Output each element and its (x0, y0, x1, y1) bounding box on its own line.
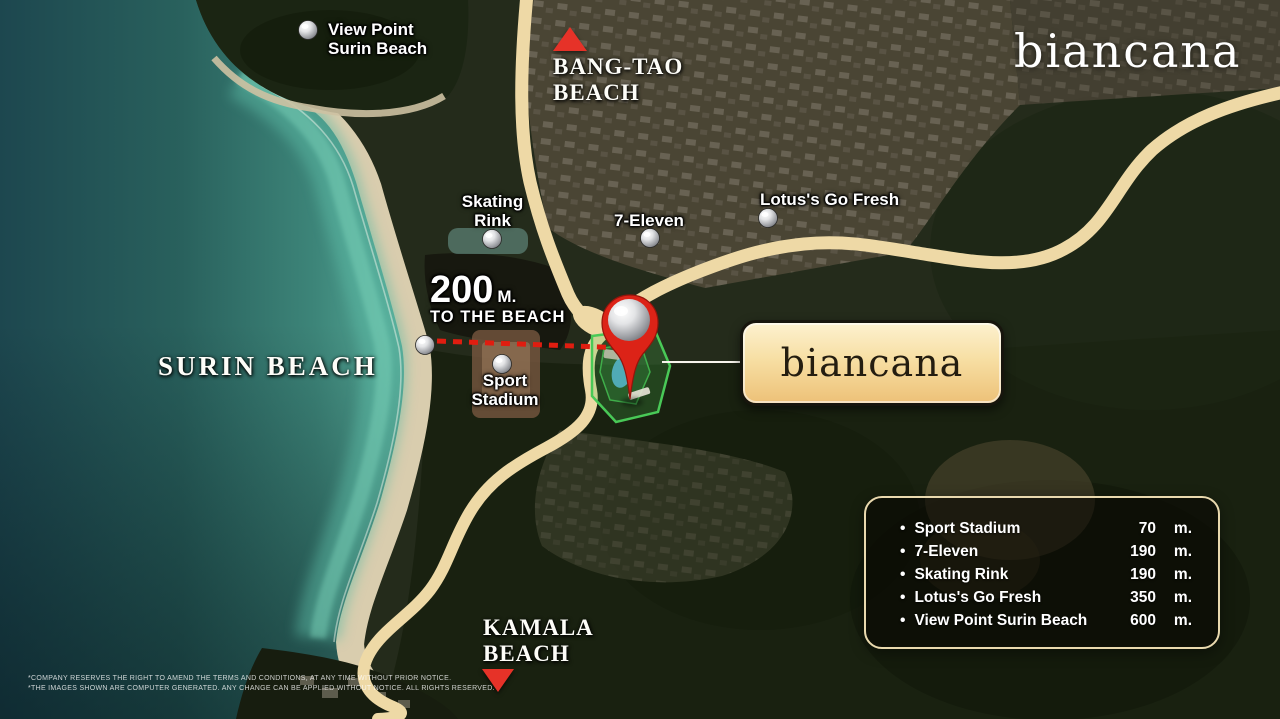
pin-shadow (621, 398, 643, 407)
lotus-pin-icon (759, 209, 778, 228)
sport-stadium-label: Sport Stadium (462, 371, 548, 409)
seven-eleven-label: 7-Eleven (614, 211, 684, 231)
beach-distance-unit: M. (497, 287, 516, 306)
sport-stadium-line1: Sport (462, 371, 548, 390)
distance-name: View Point Surin Beach (900, 609, 1110, 632)
distance-row-seven-eleven: 7-Eleven 190 m. (900, 540, 1192, 563)
distance-unit: m. (1156, 517, 1192, 540)
brand-logo: biancana (1014, 24, 1241, 78)
distance-value: 350 (1110, 586, 1156, 609)
distance-unit: m. (1156, 586, 1192, 609)
distance-row-sport-stadium: Sport Stadium 70 m. (900, 517, 1192, 540)
kamala-beach-label: KAMALA BEACH (483, 615, 594, 667)
distance-value: 190 (1110, 540, 1156, 563)
view-point-line1: View Point (328, 20, 427, 39)
distance-name: Sport Stadium (900, 517, 1110, 540)
distance-row-view-point: View Point Surin Beach 600 m. (900, 609, 1192, 632)
distance-value: 190 (1110, 563, 1156, 586)
skating-rink-pin-icon (483, 230, 502, 249)
beach-distance-value-row: 200M. (430, 272, 565, 308)
distance-unit: m. (1156, 540, 1192, 563)
skating-rink-line1: Skating (450, 192, 535, 211)
surin-beach-label: SURIN BEACH (158, 351, 378, 382)
distance-value: 70 (1110, 517, 1156, 540)
sport-stadium-line2: Stadium (462, 390, 548, 409)
distance-unit: m. (1156, 563, 1192, 586)
distance-name: 7-Eleven (900, 540, 1110, 563)
bang-tao-direction-arrow-icon (553, 27, 587, 51)
disclaimer-line2: *THE IMAGES SHOWN ARE COMPUTER GENERATED… (28, 684, 495, 694)
kamala-line2: BEACH (483, 641, 594, 667)
distance-row-lotus: Lotus's Go Fresh 350 m. (900, 586, 1192, 609)
distance-name: Lotus's Go Fresh (900, 586, 1110, 609)
kamala-line1: KAMALA (483, 615, 594, 641)
view-point-label: View Point Surin Beach (328, 20, 427, 58)
beach-distance-caption: TO THE BEACH (430, 308, 565, 327)
distance-name: Skating Rink (900, 563, 1110, 586)
seven-eleven-pin-icon (641, 229, 660, 248)
disclaimer: *COMPANY RESERVES THE RIGHT TO AMEND THE… (28, 674, 495, 693)
skating-rink-line2: Rink (450, 211, 535, 230)
pin-highlight (614, 306, 628, 316)
disclaimer-line1: *COMPANY RESERVES THE RIGHT TO AMEND THE… (28, 674, 495, 684)
view-point-line2: Surin Beach (328, 39, 427, 58)
distance-value: 600 (1110, 609, 1156, 632)
lotus-label: Lotus's Go Fresh (760, 190, 899, 210)
beach-distance-callout: 200M. TO THE BEACH (430, 272, 565, 327)
property-sign: biancana (740, 320, 1004, 406)
bang-tao-beach-label: BANG-TAO BEACH (553, 54, 683, 106)
view-point-pin-icon (299, 21, 318, 40)
location-map: View Point Surin Beach BANG-TAO BEACH bi… (0, 0, 1280, 719)
distance-unit: m. (1156, 609, 1192, 632)
pin-pearl (608, 299, 650, 341)
distance-panel: Sport Stadium 70 m. 7-Eleven 190 m. Skat… (864, 496, 1220, 649)
distance-row-skating-rink: Skating Rink 190 m. (900, 563, 1192, 586)
skating-rink-label: Skating Rink (450, 192, 535, 230)
property-sign-text: biancana (781, 341, 964, 385)
bang-tao-line1: BANG-TAO (553, 54, 683, 80)
beach-distance-value: 200 (430, 269, 493, 311)
beach-pin-icon (416, 336, 435, 355)
bang-tao-line2: BEACH (553, 80, 683, 106)
